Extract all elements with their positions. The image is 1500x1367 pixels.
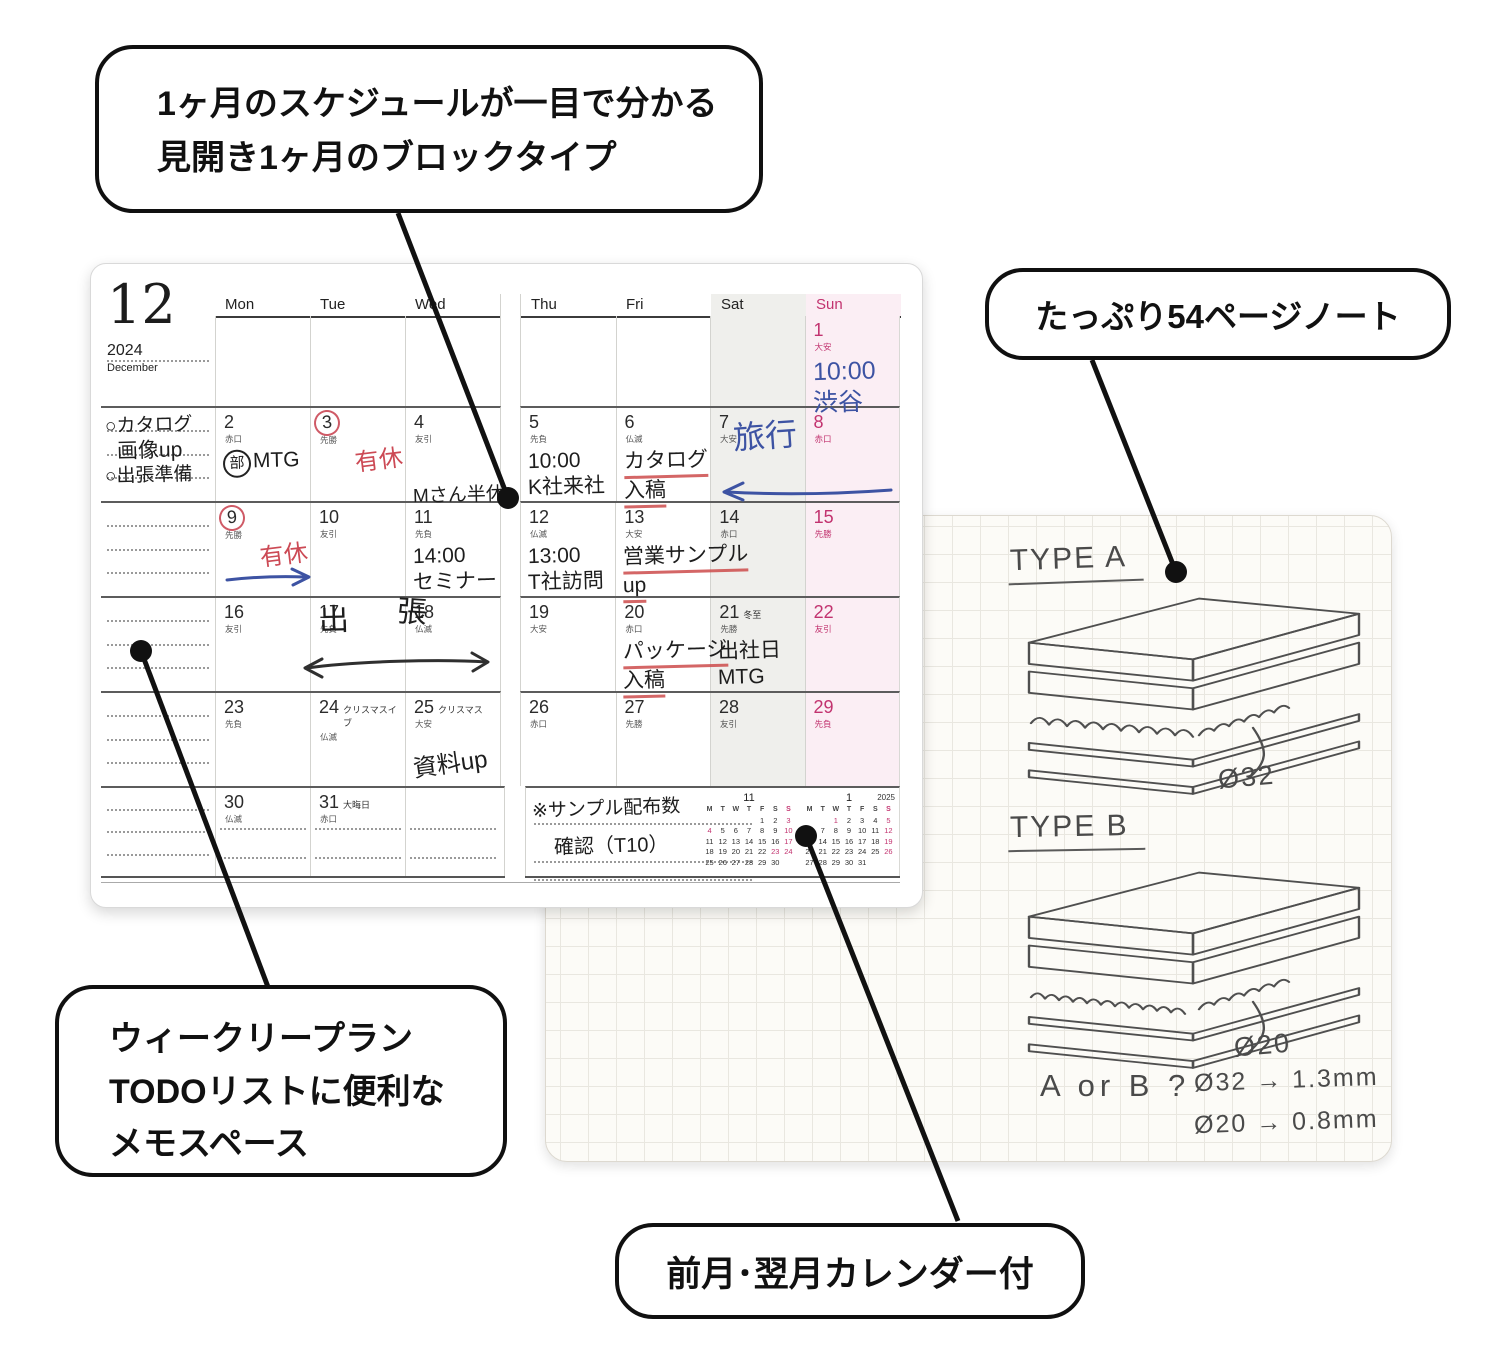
calendar-day-cell: 6仏滅カタログ入稿 [616, 408, 711, 501]
calendar-day-cell: 4友引Mさん半休 [405, 408, 500, 501]
weekday-header: Fri [616, 294, 711, 316]
weekday-header: Thu [521, 294, 616, 316]
calendar-day-cell [310, 316, 405, 406]
calendar-day-cell [405, 788, 500, 876]
month-block: 12 2024 December [107, 278, 176, 374]
calendar-day-cell [710, 316, 805, 406]
weekday-header: Sat [711, 294, 806, 316]
calendar-day-cell: 10友引 [310, 503, 405, 596]
callout-line: TODOリストに便利な [109, 1066, 503, 1119]
calendar-day-cell: 23先負 [215, 693, 310, 786]
callout-line: 1ヶ月のスケジュールが一目で分かる [157, 77, 759, 131]
calendar-day-cell: 17先負 [310, 598, 405, 691]
calendar-day-cell: 7大安 [710, 408, 805, 501]
callout-line: 前月･翌月カレンダー付 [666, 1246, 1034, 1297]
calendar-day-cell: 21冬至先勝出社日MTG [710, 598, 804, 691]
weekday-header: Wed [405, 294, 500, 316]
sketch-diameter-20-label: Ø20 [1233, 1028, 1293, 1064]
calendar-day-cell [215, 316, 310, 406]
calendar-day-cell [405, 316, 500, 406]
memo-column-cell: ○カタログ画像up○出張準備 [101, 408, 215, 501]
sketch-type-a-label: TYPE A [1007, 540, 1143, 586]
callout-line: メモスペース [109, 1118, 503, 1171]
calendar-day-cell: 20赤口パッケージ入稿 [615, 598, 710, 691]
calendar-day-cell: 18仏滅 [405, 598, 500, 691]
monthly-calendar-page: 12 2024 December MonTueWedThuFriSatSun1大… [90, 263, 923, 908]
calendar-day-cell: 15先勝 [805, 503, 899, 596]
footer-notes-area: ※サンプル配布数確認（T10）11MTWTFSS1234567891011121… [526, 788, 899, 876]
calendar-day-cell: 13大安営業サンプルup [615, 503, 710, 596]
calendar-day-cell: 12仏滅13:00T社訪問 [521, 503, 615, 596]
sketch-thickness-note-2: Ø20 → 0.8mm [1194, 1105, 1379, 1140]
month-name: December [107, 362, 176, 374]
calendar-day-cell: 24クリスマスイブ仏滅 [310, 693, 405, 786]
memo-column-cell [101, 598, 215, 691]
weekday-header: Tue [310, 294, 405, 316]
calendar-day-cell: 31大晦日赤口 [310, 788, 405, 876]
sketch-question-note: A or B ? [1040, 1068, 1190, 1104]
callout-memo-space: ウィークリープラン TODOリストに便利な メモスペース [55, 985, 507, 1177]
mini-calendar: 12025MTWTFSS1234567891011121314151617181… [803, 792, 895, 868]
callout-mini-calendars: 前月･翌月カレンダー付 [615, 1223, 1085, 1319]
calendar-day-cell: 5先負10:00K社来社 [521, 408, 616, 501]
mini-calendars: 11MTWTFSS1234567891011121314151617181920… [703, 792, 895, 868]
calendar-day-cell: 11先負14:00セミナー [405, 503, 500, 596]
calendar-day-cell: 1大安10:00渋谷 [805, 316, 900, 406]
calendar-day-cell: 30仏滅 [215, 788, 310, 876]
year-label: 2024 [107, 342, 176, 360]
calendar-day-cell: 28友引 [710, 693, 805, 786]
sketch-diameter-32-label: Ø32 [1217, 760, 1277, 796]
calendar-day-cell: 3先勝有休 [310, 408, 405, 501]
mini-calendar: 11MTWTFSS1234567891011121314151617181920… [703, 792, 795, 868]
weekday-header: Sun [806, 294, 901, 316]
callout-line: たっぷり54ページノート [1035, 290, 1400, 338]
sketch-type-b-label: TYPE B [1008, 809, 1145, 852]
memo-column-cell [101, 503, 215, 596]
callout-line: 見開き1ヶ月のブロックタイプ [157, 131, 759, 185]
calendar-day-cell: 16友引 [215, 598, 310, 691]
calendar-day-cell [616, 316, 711, 406]
calendar-day-cell: 19大安 [521, 598, 615, 691]
memo-column-cell [101, 788, 215, 876]
product-infographic: TYPE A Ø32 TYPE B Ø20 A or B ? Ø32 → 1.3… [0, 0, 1500, 1367]
calendar-day-cell: 29先負 [805, 693, 900, 786]
memo-handwriting: ○カタログ画像up○出張準備 [105, 414, 192, 488]
callout-line: ウィークリープラン [109, 1013, 503, 1066]
callout-monthly-block-type: 1ヶ月のスケジュールが一目で分かる 見開き1ヶ月のブロックタイプ [95, 45, 763, 213]
calendar-day-cell [521, 316, 616, 406]
sketch-thickness-note-1: Ø32 → 1.3mm [1194, 1063, 1379, 1098]
memo-column-cell [101, 693, 215, 786]
calendar-day-cell: 9先勝有休 [215, 503, 310, 596]
callout-54-page-note: たっぷり54ページノート [985, 268, 1451, 360]
calendar-day-cell: 26赤口 [521, 693, 616, 786]
calendar-day-cell: 25クリスマス大安資料up [405, 693, 500, 786]
calendar-day-cell: 8赤口 [805, 408, 900, 501]
month-number: 12 [107, 278, 176, 332]
calendar-grid: MonTueWedThuFriSatSun1大安10:00渋谷○カタログ画像up… [101, 294, 900, 883]
calendar-day-cell: 22友引 [805, 598, 899, 691]
calendar-day-cell: 2赤口部MTG [215, 408, 310, 501]
weekday-header: Mon [215, 294, 310, 316]
calendar-day-cell: 27先勝 [616, 693, 711, 786]
